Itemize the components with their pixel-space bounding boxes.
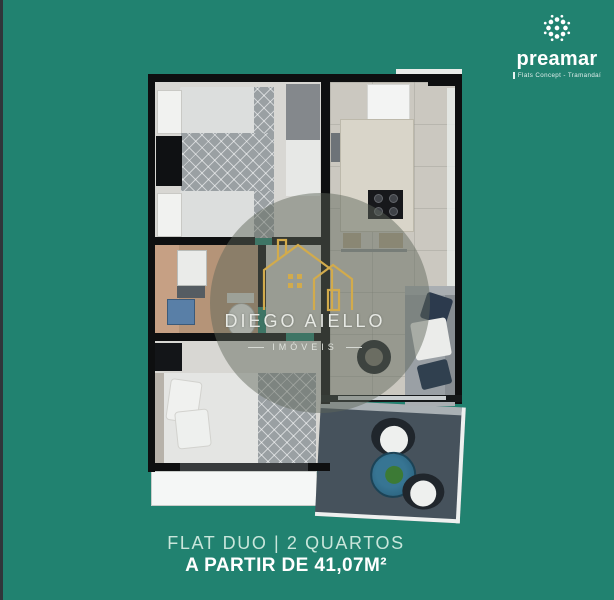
wardrobe-upper (286, 84, 320, 140)
diamond-blanket-center (181, 133, 274, 191)
watermark-subtitle-text: IMÓVEIS (272, 342, 338, 352)
wall-right (455, 74, 462, 404)
brand-logo: preamar Flats Concept - Tramandaí (498, 12, 614, 79)
wall-top (148, 74, 462, 82)
dash-line (248, 347, 264, 348)
rosette-icon (539, 12, 575, 44)
entry-door-notch (428, 77, 456, 86)
wall-left (148, 74, 155, 472)
single-bed-1-pillow (157, 90, 182, 134)
dash-line (346, 347, 362, 348)
bedroom2-sliding-door (180, 463, 308, 471)
wardrobe-lower (286, 140, 320, 196)
single-bed-1-sheet (180, 87, 256, 137)
fridge (367, 84, 410, 124)
wall-bedroom2-bottom-b (308, 463, 330, 471)
caption-line1: FLAT DUO | 2 QUARTOS (0, 533, 572, 554)
brand-name: preamar (498, 49, 614, 70)
burner-icon (374, 194, 383, 203)
double-bed-headboard (154, 373, 164, 465)
watermark-title: DIEGO AIELLO (148, 311, 462, 332)
brand-tagline-text: Flats Concept - Tramandaí (518, 72, 601, 79)
single-bed-1-blanket (254, 87, 274, 137)
burner-icon (389, 194, 398, 203)
shower-tray (177, 250, 207, 286)
wall-bedroom2-bottom-a (148, 463, 180, 471)
terrace (151, 471, 317, 506)
double-house-icon (258, 232, 354, 312)
nightstand-1 (156, 136, 182, 186)
single-bed-2-pillow (157, 193, 182, 237)
burner-icon (389, 207, 398, 216)
double-bed-pillow-2 (174, 408, 212, 449)
tagline-bar (513, 72, 515, 79)
balcony (315, 400, 466, 523)
shower-bench (177, 286, 205, 298)
promo-image: DIEGO AIELLO IMÓVEIS preamar Flats Conce… (0, 0, 614, 600)
brand-tagline: Flats Concept - Tramandaí (498, 72, 614, 79)
caption-line2: A PARTIR DE 41,07M² (0, 555, 572, 577)
watermark-subtitle: IMÓVEIS (148, 342, 462, 352)
left-edge-strip (0, 0, 3, 600)
